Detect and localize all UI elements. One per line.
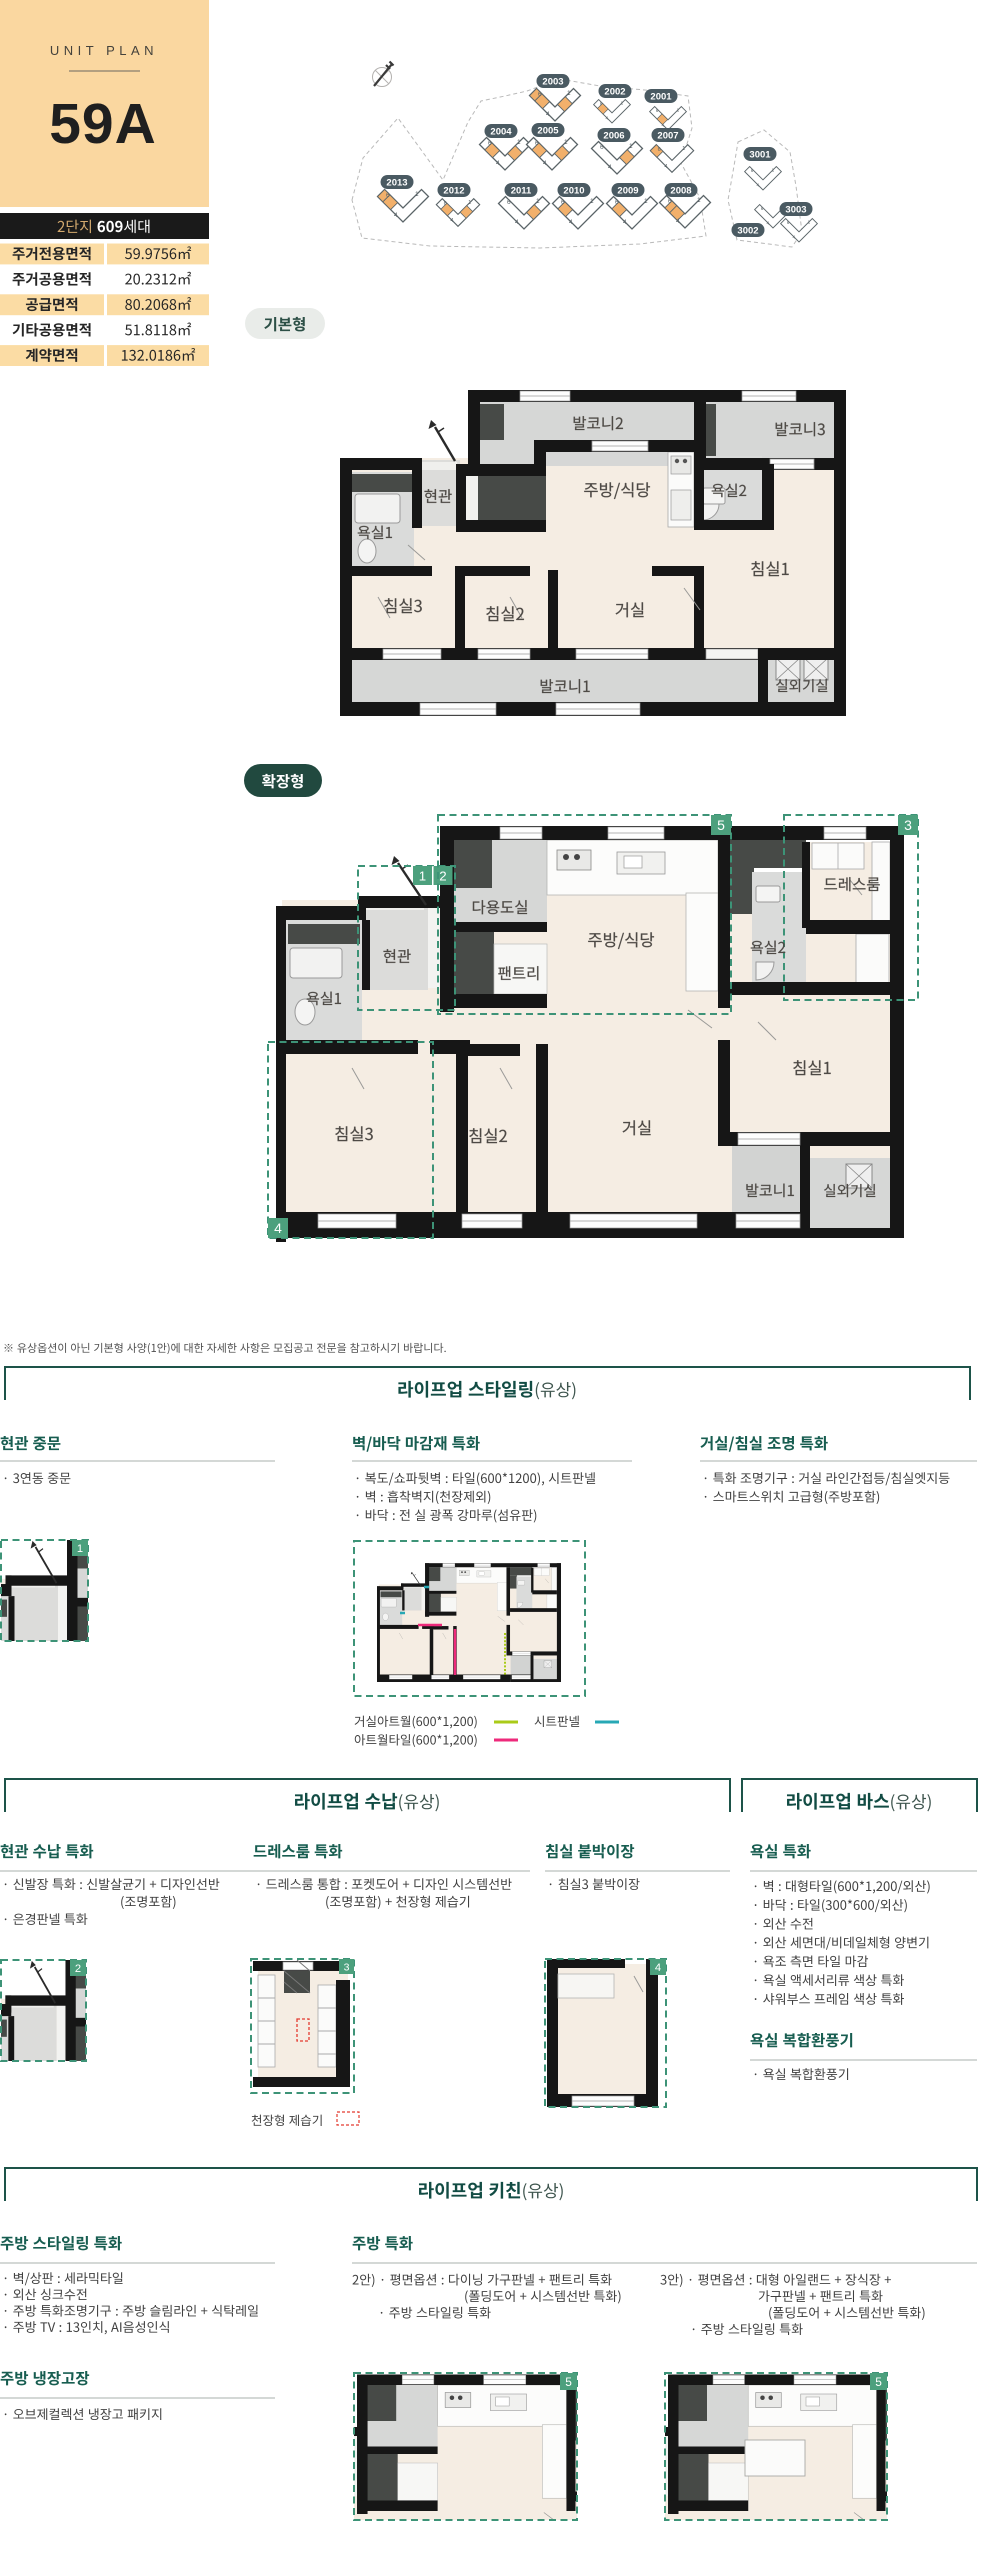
svg-text:6: 6 <box>658 147 661 153</box>
svg-text:UNIT PLAN: UNIT PLAN <box>50 43 158 58</box>
svg-text:1: 1 <box>536 198 540 205</box>
svg-text:3002: 3002 <box>737 225 758 236</box>
svg-text:2007: 2007 <box>657 130 678 141</box>
svg-text:3003: 3003 <box>785 204 806 215</box>
svg-text:4: 4 <box>608 164 612 171</box>
svg-text:6: 6 <box>535 140 539 147</box>
svg-text:2011: 2011 <box>511 185 532 196</box>
svg-text:4: 4 <box>664 164 667 170</box>
svg-text:4: 4 <box>606 115 609 120</box>
svg-text:2004: 2004 <box>490 126 512 137</box>
svg-text:2: 2 <box>75 1963 81 1975</box>
svg-text:4: 4 <box>662 122 665 127</box>
svg-text:1: 1 <box>808 219 811 224</box>
svg-text:4: 4 <box>767 220 770 225</box>
svg-text:3001: 3001 <box>749 149 771 160</box>
svg-text:4: 4 <box>496 160 500 167</box>
svg-text:2005: 2005 <box>537 125 559 136</box>
svg-text:4: 4 <box>793 234 796 239</box>
svg-text:6: 6 <box>668 198 672 205</box>
svg-text:6: 6 <box>444 201 447 207</box>
svg-text:4: 4 <box>274 1220 282 1236</box>
svg-text:2012: 2012 <box>443 185 464 196</box>
svg-text:1: 1 <box>567 90 571 97</box>
svg-text:6: 6 <box>488 140 492 147</box>
svg-text:3: 3 <box>344 1961 350 1973</box>
svg-text:1: 1 <box>419 868 426 883</box>
svg-text:2002: 2002 <box>604 86 625 97</box>
svg-text:4: 4 <box>543 160 547 167</box>
svg-text:4: 4 <box>546 111 550 118</box>
svg-text:4: 4 <box>623 219 627 226</box>
svg-text:5: 5 <box>565 2375 572 2389</box>
svg-text:6: 6 <box>656 108 659 113</box>
svg-text:6: 6 <box>561 199 565 206</box>
svg-text:1: 1 <box>517 139 521 146</box>
svg-text:2006: 2006 <box>603 130 624 141</box>
svg-text:6: 6 <box>386 192 390 199</box>
svg-text:2: 2 <box>439 868 446 883</box>
svg-text:2010: 2010 <box>563 185 584 196</box>
svg-text:2003: 2003 <box>542 76 563 87</box>
svg-text:1: 1 <box>644 198 648 205</box>
svg-text:6: 6 <box>538 91 542 98</box>
svg-text:1: 1 <box>677 107 680 112</box>
svg-text:59A: 59A <box>49 92 157 156</box>
svg-text:2009: 2009 <box>617 185 638 196</box>
svg-text:5: 5 <box>717 817 725 833</box>
svg-text:1: 1 <box>590 198 594 205</box>
svg-text:1: 1 <box>468 200 471 206</box>
svg-text:4: 4 <box>655 1962 661 1974</box>
svg-text:4: 4 <box>569 219 573 226</box>
svg-text:2001: 2001 <box>650 91 672 102</box>
svg-text:1: 1 <box>415 191 419 198</box>
svg-text:4: 4 <box>394 212 398 219</box>
svg-text:1: 1 <box>697 197 701 204</box>
svg-text:1: 1 <box>629 143 633 150</box>
svg-text:1: 1 <box>772 167 775 172</box>
svg-text:1: 1 <box>564 139 568 146</box>
svg-text:1: 1 <box>621 100 624 105</box>
svg-text:2013: 2013 <box>386 177 407 188</box>
svg-text:6: 6 <box>507 199 511 206</box>
svg-text:6: 6 <box>761 206 764 211</box>
svg-text:1: 1 <box>682 146 685 152</box>
svg-text:6: 6 <box>787 220 790 225</box>
svg-text:3: 3 <box>904 817 912 833</box>
svg-text:4: 4 <box>757 182 760 187</box>
svg-text:1: 1 <box>77 1543 83 1555</box>
svg-text:6: 6 <box>600 101 603 106</box>
svg-text:6: 6 <box>751 168 754 173</box>
svg-text:5: 5 <box>875 2375 882 2389</box>
svg-text:4: 4 <box>515 219 519 226</box>
svg-text:4: 4 <box>450 218 453 224</box>
svg-text:2008: 2008 <box>670 185 691 196</box>
svg-text:6: 6 <box>600 144 604 151</box>
svg-text:4: 4 <box>676 218 680 225</box>
svg-text:6: 6 <box>615 199 619 206</box>
